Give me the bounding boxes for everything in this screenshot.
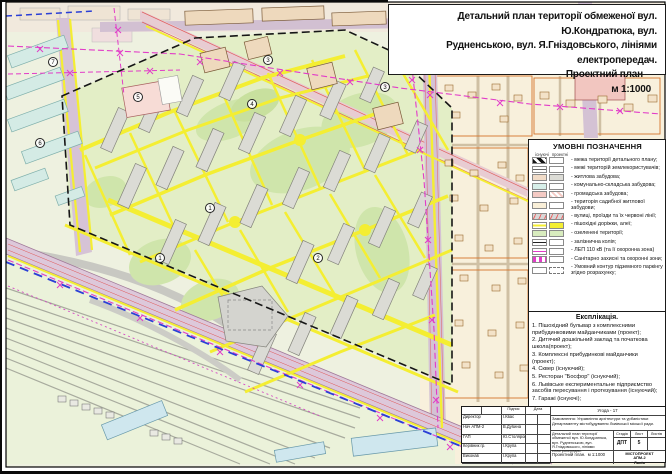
stamp-project-info: Угода - 17 Замовлення: Управління архіте… xyxy=(550,407,665,462)
legend-chip-communal xyxy=(532,183,547,190)
explication-item: 2. Дитячий дошкільний заклад та початков… xyxy=(532,337,662,350)
legend-label: - озеленені території; xyxy=(571,231,623,237)
stamp-stage-table: Стадія Лист Листів ДПТ 5 xyxy=(614,431,665,450)
stamp-role: Виконав xyxy=(462,454,502,464)
stamp-sheets-value xyxy=(648,438,665,450)
legend-row: - житлова забудова; xyxy=(532,174,663,181)
stamp-sign-header: Підпис xyxy=(502,407,526,415)
map-title-line2: Рудненською, вул. Я.Гніздовського, лінія… xyxy=(395,39,657,68)
explication-item: 7. Гаражі (існуючі); xyxy=(532,396,662,403)
legend-row: - вулиці, проїзди та їх червоні лінії; xyxy=(532,213,663,220)
area-marker: 7 xyxy=(48,57,58,67)
legend-chip-green-existing xyxy=(532,230,547,237)
stamp-role: ГАП xyxy=(462,435,502,445)
legend-chip-boundary xyxy=(532,157,547,164)
stamp-sheet-value: 5 xyxy=(631,438,648,450)
legend-row: - ЛЕП 110 кВ (та її охоронна зона) xyxy=(532,248,663,255)
explication-item: 5. Ресторан "Босфор" (існуючий); xyxy=(532,374,662,381)
area-marker: 1 xyxy=(205,203,215,213)
legend-label: - пішохідні доріжки, алеї; xyxy=(571,222,632,228)
explication-item: 3. Комплексні прибудинкові майданчики (п… xyxy=(532,352,662,365)
legend-chip-residential-existing xyxy=(532,174,547,181)
map-title-box: Детальний план території обмеженої вул. … xyxy=(388,4,666,75)
explication-item: 1. Пішохідний бульвар з комплексними при… xyxy=(532,323,662,336)
stamp-sign-cell xyxy=(526,444,538,454)
stamp-sign-cell xyxy=(526,435,538,445)
stamp-plan-scale: Проектний план. м 1:1000 xyxy=(550,451,614,464)
stamp-sheet-label: Лист xyxy=(631,431,648,438)
legend-label: - ЛЕП 110 кВ (та її охоронна зона) xyxy=(571,248,654,254)
map-scale: м 1:1000 xyxy=(395,83,657,98)
stamp-header-blank xyxy=(462,407,482,415)
legend-chip-public-existing xyxy=(532,191,547,198)
legend-row: - Санітарно захисні та охоронні зони; xyxy=(532,256,663,263)
legend-label: - межі територій землекористувачів; xyxy=(571,166,660,172)
explication-box: Експлікація. 1. Пішохідний бульвар з ком… xyxy=(528,311,666,421)
stamp-name: І.Крупа xyxy=(502,454,526,464)
stamp-name: В.Дубина xyxy=(502,425,526,435)
legend-chip-public-project xyxy=(549,191,564,198)
stamp-stage-value: ДПТ xyxy=(614,438,631,450)
stamp-plan-label: Проектний план. xyxy=(552,452,585,457)
area-marker: 3 xyxy=(380,82,390,92)
stamp-org-line3: Львів xyxy=(614,461,665,465)
stamp-name: Ю.Столяров xyxy=(502,435,526,445)
scan-edge-top xyxy=(0,0,388,2)
stamp-scale-value: м 1:1000 xyxy=(588,452,605,457)
legend-label: - межа території детального плану; xyxy=(571,158,657,164)
explication-title: Експлікація. xyxy=(532,314,662,321)
stamp-name: І.Крупа xyxy=(502,444,526,454)
area-marker: 1 xyxy=(155,253,165,263)
legend-chip-streets-existing xyxy=(532,213,547,220)
legend-label: - Санітарно захисні та охоронні зони; xyxy=(571,257,662,263)
legend-row: - межа території детального плану; xyxy=(532,157,663,164)
legend-chip-blank xyxy=(549,183,564,190)
legend-chip-manor xyxy=(532,202,547,209)
legend-chip-streets-project xyxy=(549,213,564,220)
stamp-role: Керівник гр. xyxy=(462,444,502,454)
area-marker: 4 xyxy=(247,99,257,109)
legend-chip-underground-parking xyxy=(549,267,564,274)
legend-chip-blank xyxy=(549,157,564,164)
legend-chip-power-line xyxy=(532,248,547,255)
map-title-line1: Детальний план території обмеженої вул. … xyxy=(395,10,657,39)
legend-chip-blank xyxy=(549,248,564,255)
stamp-header-blank xyxy=(482,407,502,415)
legend-label: - комунально-складська забудова; xyxy=(571,183,656,189)
legend-label: - Умовний контур підземного паркінгу згі… xyxy=(571,265,663,277)
legend-chip-residential-project xyxy=(549,174,564,181)
legend-chip-blank xyxy=(532,267,547,274)
stamp-date-cell xyxy=(538,444,550,454)
stamp-sign-cell xyxy=(526,425,538,435)
legend-row: - межі територій землекористувачів; xyxy=(532,166,663,173)
stamp-date-cell xyxy=(538,415,550,425)
legend-label: - громадська забудова; xyxy=(571,192,628,198)
stamp-project-title: Детальний план території обмеженої вул. … xyxy=(550,431,614,450)
stamp-organization: МІСТОПРОЕКТ АПМ-2 Львів xyxy=(614,451,665,464)
explication-item: 6. Львівське експериментальне підприємст… xyxy=(532,382,662,395)
legend-row: - територія садибної житлової забудови; xyxy=(532,200,663,212)
legend-chip-paths-existing xyxy=(532,222,547,229)
legend-chip-paths-project xyxy=(549,222,564,229)
legend-row: - громадська забудова; xyxy=(532,191,663,198)
stamp-signatures: Підпис Дата ДиректорІ.Квас Нач АПМ-2В.Ду… xyxy=(462,407,551,462)
stamp-sheets-label: Листів xyxy=(648,431,665,438)
map-title-line3: Проектний план xyxy=(395,68,657,83)
legend-chip-blank xyxy=(549,166,564,173)
area-marker: 6 xyxy=(35,138,45,148)
legend-row: - комунально-складська забудова; xyxy=(532,183,663,190)
legend-chip-blank xyxy=(549,256,564,263)
legend-label: - залізнична колія; xyxy=(571,240,616,246)
stamp-sign-cell xyxy=(526,454,538,464)
legend-chip-blank xyxy=(549,202,564,209)
legend-row: - залізнична колія; xyxy=(532,239,663,246)
stamp-role: Директор xyxy=(462,415,502,425)
stamp-date-header: Дата xyxy=(526,407,550,415)
legend-title: УМОВНІ ПОЗНАЧЕННЯ xyxy=(532,142,663,151)
title-block: Підпис Дата ДиректорІ.Квас Нач АПМ-2В.Ду… xyxy=(461,406,666,463)
stamp-role: Нач АПМ-2 xyxy=(462,425,502,435)
plan-sheet: 7 5 3 4 3 6 1 2 1 Детальний план територ… xyxy=(0,0,672,474)
legend-row: - пішохідні доріжки, алеї; xyxy=(532,222,663,229)
stamp-sign-cell xyxy=(526,415,538,425)
scan-edge-left xyxy=(0,0,2,474)
stamp-date-cell xyxy=(538,435,550,445)
legend-label: - житлова забудова; xyxy=(571,175,620,181)
area-marker: 2 xyxy=(313,253,323,263)
stamp-name: І.Квас xyxy=(502,415,526,425)
legend-row: - озеленені території; xyxy=(532,230,663,237)
stamp-agreement: Угода - 17 xyxy=(550,407,665,416)
stamp-date-cell xyxy=(538,425,550,435)
stamp-order: Замовлення: Управління архітектури та ур… xyxy=(550,416,665,431)
legend-chip-blank xyxy=(549,239,564,246)
area-marker: 5 xyxy=(133,92,143,102)
legend-box: УМОВНІ ПОЗНАЧЕННЯ існуючі проектні - меж… xyxy=(528,139,666,312)
legend-row: - Умовний контур підземного паркінгу згі… xyxy=(532,265,663,277)
stamp-stage-label: Стадія xyxy=(614,431,631,438)
legend-chip-landusers xyxy=(532,166,547,173)
legend-label: - вулиці, проїзди та їх червоні лінії; xyxy=(571,214,656,220)
stamp-date-cell xyxy=(538,454,550,464)
explication-item: 4. Сквер (існуючий); xyxy=(532,366,662,373)
legend-label: - територія садибної житлової забудови; xyxy=(571,200,663,212)
legend-chip-green-project xyxy=(549,230,564,237)
legend-chip-sanitary-zone xyxy=(532,256,547,263)
area-marker: 3 xyxy=(263,55,273,65)
legend-chip-railway xyxy=(532,239,547,246)
